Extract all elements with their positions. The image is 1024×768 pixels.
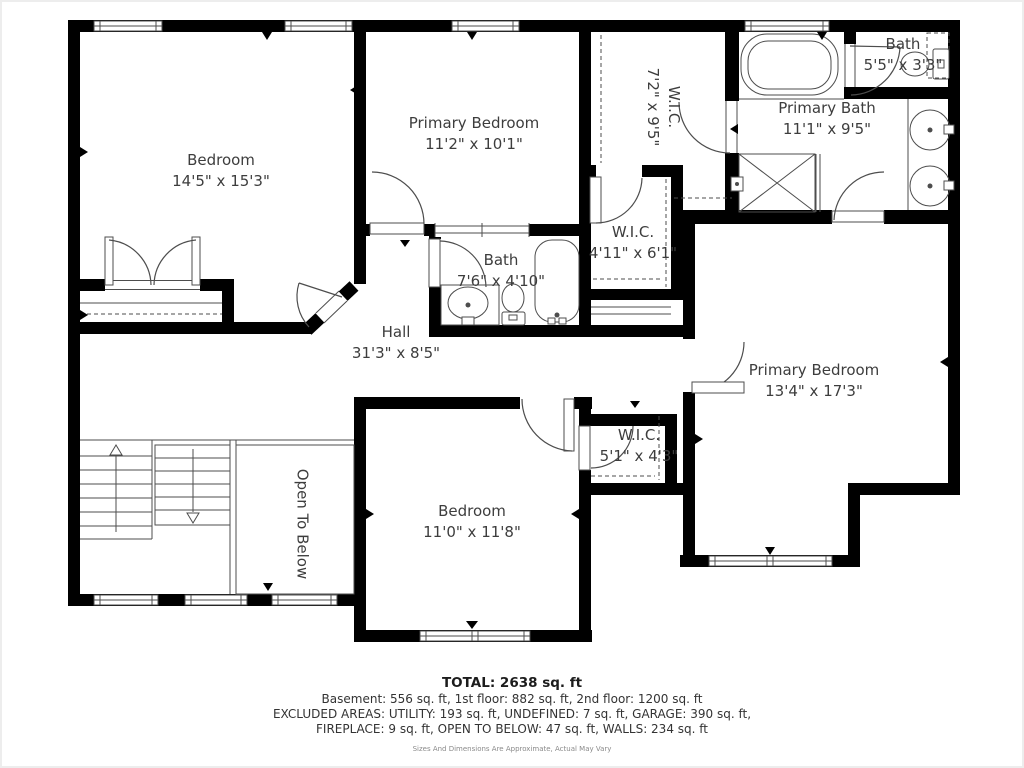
room-name: Open To Below (292, 469, 313, 580)
room-dims: 4'11" x 6'1" (589, 243, 677, 264)
window (452, 21, 519, 31)
room-name: Primary Bath (778, 98, 876, 119)
room-label-bath-small: Bath 5'5" x 3'3" (864, 34, 943, 76)
room-dims: 31'3" x 8'5" (352, 343, 440, 364)
room-dims: 5'1" x 4'3" (600, 446, 679, 467)
door-wic-top (679, 101, 740, 153)
room-label-primary-bedroom-right: Primary Bedroom 13'4" x 17'3" (749, 360, 880, 402)
double-vanity (908, 99, 954, 210)
room-name: Bedroom (172, 150, 270, 171)
room-name: Bath (864, 34, 943, 55)
closet-double-door (105, 237, 200, 292)
room-label-bedroom-top-left: Bedroom 14'5" x 15'3" (172, 150, 270, 192)
door-bedroom-bottom (520, 396, 574, 451)
room-label-open-to-below: Open To Below (292, 469, 313, 580)
room-label-bedroom-bottom: Bedroom 11'0" x 11'8" (423, 501, 521, 543)
room-label-primary-bedroom-top: Primary Bedroom 11'2" x 10'1" (409, 113, 540, 155)
door-wic-mid (590, 164, 642, 223)
window (420, 631, 530, 641)
floor-plan-page: Bedroom 14'5" x 15'3" Primary Bedroom 11… (0, 0, 1024, 768)
stairs-icon (80, 440, 354, 594)
room-dims: 5'5" x 3'3" (864, 55, 943, 76)
room-name: W.I.C. (663, 68, 684, 147)
window (94, 595, 158, 605)
room-label-primary-bath: Primary Bath 11'1" x 9'5" (778, 98, 876, 140)
stairs-up-arrow (110, 445, 122, 532)
room-dims: 14'5" x 15'3" (172, 171, 270, 192)
footer-disclaimer: Sizes And Dimensions Are Approximate, Ac… (2, 745, 1022, 753)
window (185, 595, 247, 605)
sink-icon (910, 166, 954, 206)
room-dims: 11'2" x 10'1" (409, 134, 540, 155)
room-name: Bedroom (423, 501, 521, 522)
door-primary-bedroom-right (682, 339, 744, 393)
room-dims: 7'6" x 4'10" (457, 271, 545, 292)
room-name: Primary Bedroom (409, 113, 540, 134)
stairs-down-arrow (187, 449, 199, 523)
window (745, 21, 829, 31)
room-dims: 11'0" x 11'8" (423, 522, 521, 543)
room-name: Hall (352, 322, 440, 343)
door-primary-bedroom-top (370, 172, 424, 237)
room-dims: 7'2" x 9'5" (642, 68, 663, 147)
door-primary-bath (832, 172, 884, 225)
room-label-hall: Hall 31'3" x 8'5" (352, 322, 440, 364)
pocket-door-opening (435, 223, 529, 237)
room-label-wic-mid: W.I.C. 4'11" x 6'1" (589, 222, 677, 264)
room-dims: 11'1" x 9'5" (778, 119, 876, 140)
sink-icon (910, 110, 954, 150)
window (272, 595, 337, 605)
bathtub-icon (739, 34, 844, 99)
footer-excluded-1: EXCLUDED AREAS: UTILITY: 193 sq. ft, UND… (2, 707, 1022, 721)
footer-floors: Basement: 556 sq. ft, 1st floor: 882 sq.… (2, 692, 1022, 706)
room-label-wic-top: W.I.C. 7'2" x 9'5" (642, 68, 684, 147)
window (94, 21, 162, 31)
footer-total: TOTAL: 2638 sq. ft (2, 675, 1022, 691)
window (709, 556, 832, 566)
room-name: Bath (457, 250, 545, 271)
window (285, 21, 352, 31)
room-name: W.I.C. (589, 222, 677, 243)
shower-icon (731, 154, 820, 212)
room-name: W.I.C. (600, 425, 679, 446)
footer-excluded-2: FIREPLACE: 9 sq. ft, OPEN TO BELOW: 47 s… (2, 722, 1022, 736)
room-name: Primary Bedroom (749, 360, 880, 381)
room-label-wic-bottom: W.I.C. 5'1" x 4'3" (600, 425, 679, 467)
room-dims: 13'4" x 17'3" (749, 381, 880, 402)
room-label-bath-mid: Bath 7'6" x 4'10" (457, 250, 545, 292)
